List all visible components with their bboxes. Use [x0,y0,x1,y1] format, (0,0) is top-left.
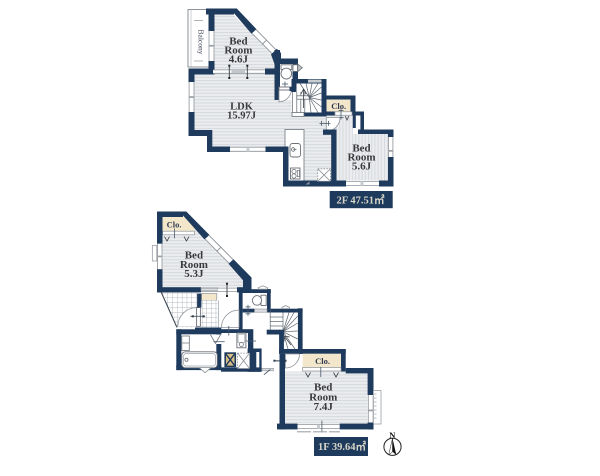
svg-text:2F 47.51㎡: 2F 47.51㎡ [336,193,385,206]
svg-text:Clo.: Clo. [315,356,330,366]
svg-text:15.97J: 15.97J [227,111,256,122]
svg-text:Clo.: Clo. [167,220,182,230]
svg-text:7.4J: 7.4J [314,401,334,413]
svg-text:Balcony: Balcony [197,30,206,55]
svg-text:1F 39.64㎡: 1F 39.64㎡ [318,440,367,453]
svg-text:5.3J: 5.3J [184,268,204,280]
svg-text:Clo.: Clo. [331,101,346,111]
svg-text:5.6J: 5.6J [352,161,372,173]
svg-text:4.6J: 4.6J [229,54,249,66]
